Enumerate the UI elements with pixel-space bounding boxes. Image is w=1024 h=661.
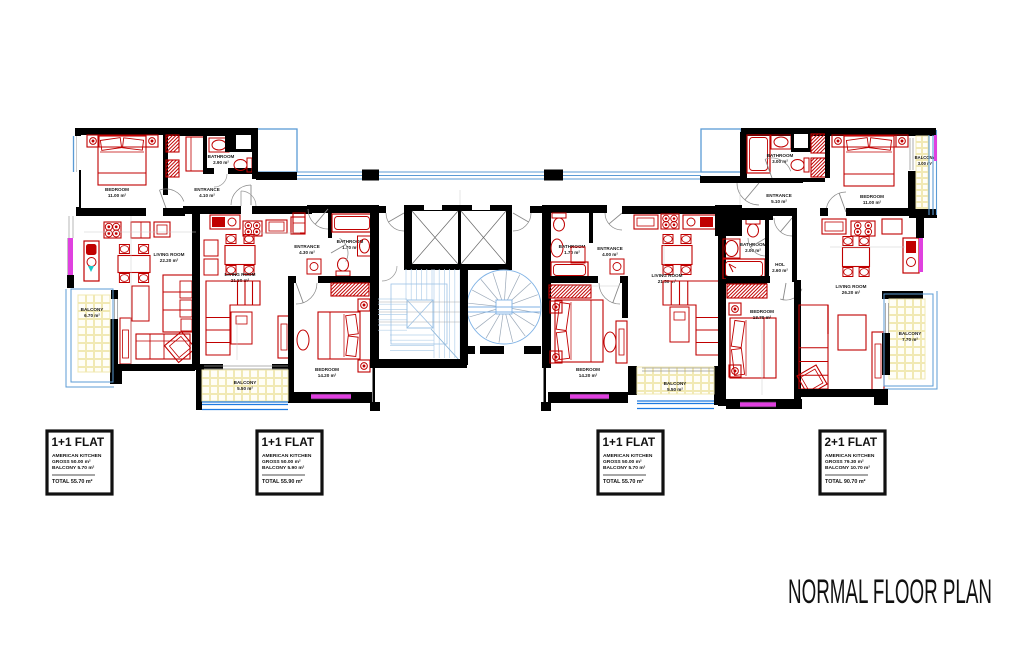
svg-text:4.30 m²: 4.30 m² bbox=[299, 250, 315, 255]
svg-text:AMERICAN KITCHEN: AMERICAN KITCHEN bbox=[603, 453, 653, 459]
svg-text:14.20 m²: 14.20 m² bbox=[318, 373, 337, 378]
svg-text:LIVING ROOM: LIVING ROOM bbox=[652, 273, 683, 278]
svg-text:BALCONY 5.90 m²: BALCONY 5.90 m² bbox=[262, 465, 305, 471]
svg-text:1.70 m²: 1.70 m² bbox=[564, 250, 580, 255]
svg-text:5.10 m²: 5.10 m² bbox=[771, 199, 787, 204]
svg-text:TOTAL 55.70 m²: TOTAL 55.70 m² bbox=[52, 479, 93, 485]
svg-text:TOTAL 90.70 m²: TOTAL 90.70 m² bbox=[825, 479, 866, 485]
svg-text:BATHROOM: BATHROOM bbox=[767, 153, 794, 158]
svg-text:BEDROOM: BEDROOM bbox=[105, 187, 129, 192]
svg-text:LIVING ROOM: LIVING ROOM bbox=[154, 252, 185, 257]
svg-text:14.20 m²: 14.20 m² bbox=[579, 373, 598, 378]
svg-text:BEDROOM: BEDROOM bbox=[315, 367, 339, 372]
svg-text:GROSS 50.00 m²: GROSS 50.00 m² bbox=[603, 459, 642, 465]
svg-text:2.60 m²: 2.60 m² bbox=[772, 268, 788, 273]
svg-text:11.00 m²: 11.00 m² bbox=[863, 200, 882, 205]
svg-text:1+1 FLAT: 1+1 FLAT bbox=[262, 435, 315, 449]
svg-text:2.90 m²: 2.90 m² bbox=[213, 160, 229, 165]
svg-text:5.50 m²: 5.50 m² bbox=[667, 387, 683, 392]
svg-text:13.70 m²: 13.70 m² bbox=[753, 315, 772, 320]
svg-text:AMERICAN KITCHEN: AMERICAN KITCHEN bbox=[825, 453, 875, 459]
svg-text:22.20 m²: 22.20 m² bbox=[160, 258, 179, 263]
svg-text:4.10 m²: 4.10 m² bbox=[199, 193, 215, 198]
svg-text:ENTRANCE: ENTRANCE bbox=[597, 246, 623, 251]
svg-text:2+1 FLAT: 2+1 FLAT bbox=[825, 435, 878, 449]
svg-text:NORMAL FLOOR PLAN: NORMAL FLOOR PLAN bbox=[788, 572, 992, 610]
svg-text:AMERICAN KITCHEN: AMERICAN KITCHEN bbox=[262, 453, 312, 459]
svg-text:1+1 FLAT: 1+1 FLAT bbox=[52, 435, 105, 449]
svg-text:BALCONY: BALCONY bbox=[915, 155, 936, 160]
svg-text:5.50 m²: 5.50 m² bbox=[237, 386, 253, 391]
svg-text:7.70 m²: 7.70 m² bbox=[902, 337, 918, 342]
svg-text:BALCONY 5.70 m²: BALCONY 5.70 m² bbox=[52, 465, 95, 471]
svg-text:6.70 m²: 6.70 m² bbox=[84, 313, 100, 318]
svg-text:BATHROOM: BATHROOM bbox=[208, 154, 235, 159]
svg-text:BALCONY: BALCONY bbox=[81, 307, 104, 312]
svg-text:26.20 m²: 26.20 m² bbox=[842, 290, 861, 295]
svg-text:BEDROOM: BEDROOM bbox=[576, 367, 600, 372]
svg-text:ENTRANCE: ENTRANCE bbox=[294, 244, 320, 249]
svg-text:GROSS 79.30 m²: GROSS 79.30 m² bbox=[825, 459, 864, 465]
svg-text:11.00 m²: 11.00 m² bbox=[108, 193, 127, 198]
svg-text:1.70 m²: 1.70 m² bbox=[342, 245, 358, 250]
svg-text:4.00 m²: 4.00 m² bbox=[602, 252, 618, 257]
svg-text:BALCONY 5.70 m²: BALCONY 5.70 m² bbox=[603, 465, 646, 471]
svg-text:ENTRANCE: ENTRANCE bbox=[194, 187, 220, 192]
svg-text:HOL: HOL bbox=[775, 262, 785, 267]
svg-text:TOTAL 55.90 m²: TOTAL 55.90 m² bbox=[262, 479, 303, 485]
svg-text:ENTRANCE: ENTRANCE bbox=[766, 193, 792, 198]
svg-text:BALCONY: BALCONY bbox=[899, 331, 922, 336]
svg-text:AMERICAN KITCHEN: AMERICAN KITCHEN bbox=[52, 453, 102, 459]
svg-text:BEDROOM: BEDROOM bbox=[860, 194, 884, 199]
svg-text:GROSS 50.00 m²: GROSS 50.00 m² bbox=[52, 459, 91, 465]
svg-text:3.00 m²: 3.00 m² bbox=[918, 161, 933, 166]
svg-text:TOTAL 55.70 m²: TOTAL 55.70 m² bbox=[603, 479, 644, 485]
svg-text:BALCONY 10.70 m²: BALCONY 10.70 m² bbox=[825, 465, 870, 471]
svg-text:1+1 FLAT: 1+1 FLAT bbox=[603, 435, 656, 449]
svg-text:BEDROOM: BEDROOM bbox=[750, 309, 774, 314]
svg-text:LIVING ROOM: LIVING ROOM bbox=[225, 272, 256, 277]
svg-text:LIVING ROOM: LIVING ROOM bbox=[836, 284, 867, 289]
svg-text:BALCONY: BALCONY bbox=[664, 381, 687, 386]
svg-text:BATHROOM: BATHROOM bbox=[740, 242, 767, 247]
svg-text:BALCONY: BALCONY bbox=[234, 380, 257, 385]
svg-text:GROSS 50.00 m²: GROSS 50.00 m² bbox=[262, 459, 301, 465]
